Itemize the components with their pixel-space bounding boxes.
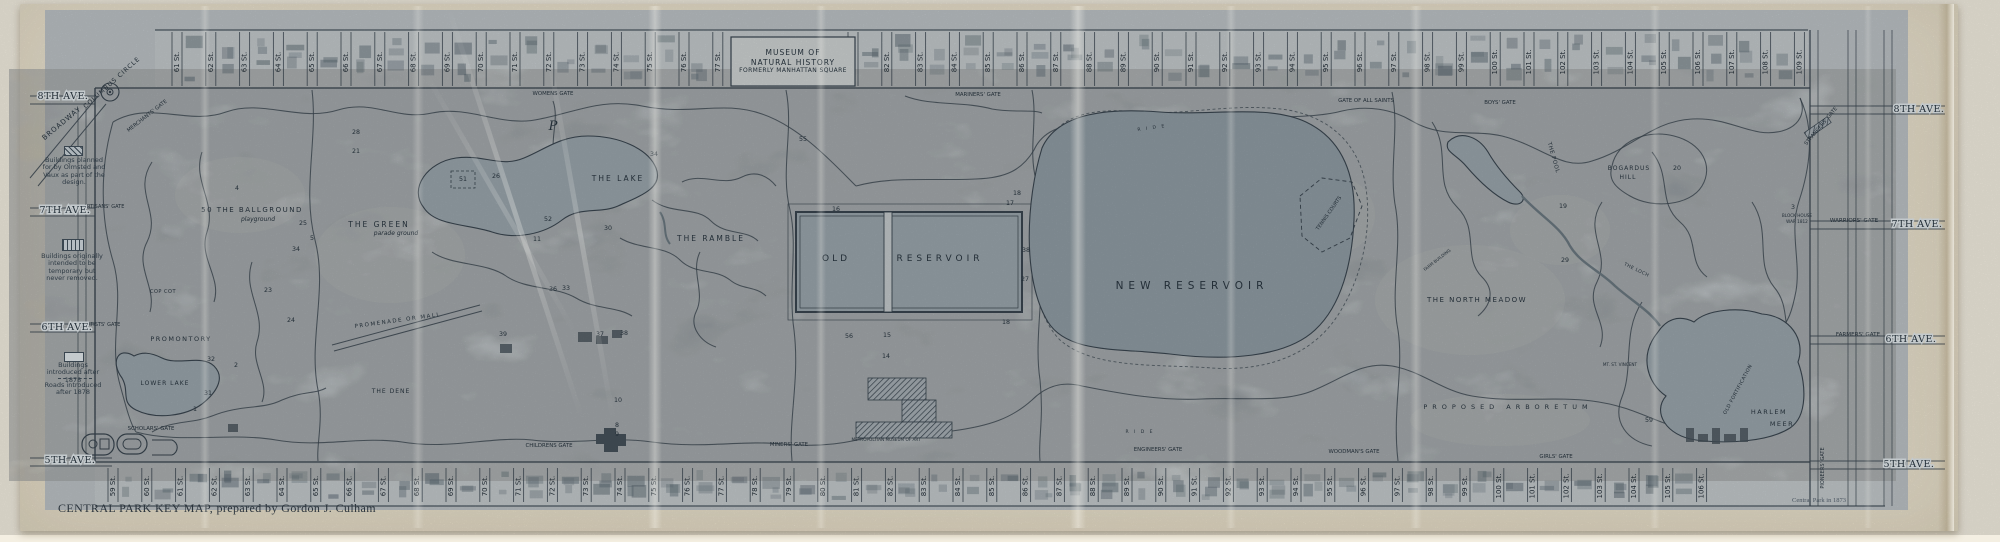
avenue-label: 8TH AVE. [38, 91, 89, 102]
gate-label: WOMENS GATE [533, 91, 575, 97]
avenue-label: 5TH AVE. [1884, 459, 1935, 470]
map-caption: CENTRAL PARK KEY MAP, prepared by Gordon… [58, 501, 376, 516]
key-number: 14 [882, 353, 890, 360]
gate-label: MARINERS' GATE [955, 92, 1001, 98]
key-number: 2 [234, 362, 238, 369]
key-number: 24 [287, 317, 295, 324]
museum-label-line: FORMERLY MANHATTAN SQUARE [739, 67, 847, 75]
key-number: 19 [1559, 203, 1567, 210]
key-number: 39 [499, 331, 507, 338]
avenue-label: 8TH AVE. [1894, 104, 1945, 115]
feature-label: NEW RESERVOIR [1116, 280, 1269, 292]
feature-label: THE RAMBLE [676, 234, 745, 243]
gate-label: CHILDRENS GATE [525, 443, 573, 449]
legend-note-roads-after-1878: Roads introduced after 1878 [44, 382, 102, 397]
key-number: 56 [845, 333, 853, 340]
key-number: 18 [1013, 190, 1021, 197]
feature-label: BOGARDUS [1608, 165, 1650, 172]
gate-label: PIONEERS' GATE [1820, 447, 1826, 488]
map-imprint: Central Park in 1873 [1792, 497, 1846, 504]
legend-swatch-hatched [64, 146, 83, 156]
key-number: 23 [264, 287, 272, 294]
key-number: 21 [352, 148, 360, 155]
gate-label: MINERS' GATE [770, 442, 809, 448]
key-number: 9 [615, 431, 619, 438]
avenue-label: 7TH AVE. [1892, 219, 1943, 230]
key-number: 20 [1673, 165, 1681, 172]
feature-label: 50 THE BALLGROUND [201, 206, 303, 214]
feature-label: playground [240, 216, 275, 223]
avenue-label: 7TH AVE. [40, 205, 91, 216]
key-number: 16 [832, 206, 840, 213]
feature-label: THE NORTH MEADOW [1426, 296, 1527, 304]
key-number: 11 [533, 236, 541, 243]
gate-label: WOODMAN'S GATE [1328, 449, 1380, 455]
feature-label: HARLEM [1751, 408, 1787, 416]
feature-label: PROMONTORY [150, 335, 211, 343]
feature-label: MEER [1770, 420, 1794, 428]
avenue-label: 6TH AVE. [1886, 334, 1937, 345]
feature-label: HILL [1620, 174, 1637, 181]
key-number: 8 [615, 422, 619, 429]
feature-label: WAR 1812 [1786, 219, 1808, 224]
legend-note-temporary-buildings: Buildings originally intended to be temp… [40, 253, 104, 283]
gate-label: BOYS' GATE [1484, 100, 1516, 106]
key-number: 31 [204, 390, 212, 397]
key-number: 17 [1006, 200, 1014, 207]
museum-label-line: MUSEUM OF [765, 48, 820, 57]
key-number: 37 [596, 331, 604, 338]
gate-label: GATE OF ALL SAINTS [1338, 98, 1394, 104]
feature-label: THE DENE [371, 388, 411, 395]
key-number: 33 [562, 285, 570, 292]
key-number: 51 [459, 176, 467, 183]
key-number: 25 [299, 220, 307, 227]
feature-label: OLD [822, 254, 850, 264]
scanned-map-sheet: 61 St.62 St.63 St.64 St.65 St.66 St.67 S… [0, 0, 2000, 542]
key-number: 3 [1791, 204, 1795, 211]
key-number: 38 [1022, 247, 1030, 254]
gate-label: GIRLS' GATE [1539, 454, 1573, 460]
key-number: 18 [1002, 319, 1010, 326]
legend-swatch-striped [62, 239, 84, 251]
feature-label: RESERVOIR [896, 254, 983, 264]
key-number: 27 [1021, 276, 1029, 283]
museum-label-line: NATURAL HISTORY [751, 58, 835, 67]
feature-label: METROPOLITAN MUSEUM OF ART [851, 437, 920, 442]
feature-label: R I D E [1125, 429, 1154, 435]
key-number: 28 [352, 129, 360, 136]
key-number: 38 [620, 330, 628, 337]
key-number: 32 [207, 356, 215, 363]
key-number: 30 [604, 225, 612, 232]
feature-label: MT. ST. VINCENT [1603, 362, 1638, 367]
avenue-label: 6TH AVE. [42, 322, 93, 333]
central-park-key-map: 61 St.62 St.63 St.64 St.65 St.66 St.67 S… [0, 0, 2000, 542]
museum-of-natural-history-label: MUSEUM OF NATURAL HISTORY FORMERLY MANHA… [731, 37, 855, 86]
key-number: 29 [1561, 257, 1569, 264]
key-number: 34 [650, 151, 658, 158]
gate-label: SCHOLARS' GATE [128, 426, 175, 432]
key-number: 1 [193, 406, 197, 413]
avenue-label: 5TH AVE. [45, 455, 96, 466]
feature-label: LOWER LAKE [141, 380, 190, 387]
gate-label: WARRIORS' GATE [1830, 218, 1879, 224]
key-number: 36 [549, 286, 557, 293]
gate-label: ENGINEERS' GATE [1134, 447, 1183, 453]
gate-label: FARMERS' GATE [1836, 332, 1881, 338]
key-number: 52 [544, 216, 552, 223]
legend-swatch-dashed [58, 378, 92, 379]
feature-label: THE GREEN [347, 220, 409, 229]
key-number: 4 [235, 185, 239, 192]
key-number: 5 [310, 235, 314, 242]
feature-label: parade ground [373, 230, 419, 237]
key-number: 59 [1645, 417, 1653, 424]
key-number: 34 [292, 246, 300, 253]
feature-label: P [548, 119, 558, 134]
key-number: 26 [492, 173, 500, 180]
feature-label: PROPOSED ARBORETUM [1423, 403, 1592, 411]
key-number: 15 [883, 332, 891, 339]
feature-label: COP COT [150, 289, 176, 295]
legend-note-planned-buildings: Buildings planned for by Olmsted and Vau… [42, 157, 106, 187]
key-number: 55 [799, 136, 807, 143]
key-number: 10 [614, 397, 622, 404]
feature-label: THE LAKE [591, 174, 644, 183]
feature-label: BLOCK HOUSE [1782, 213, 1813, 218]
